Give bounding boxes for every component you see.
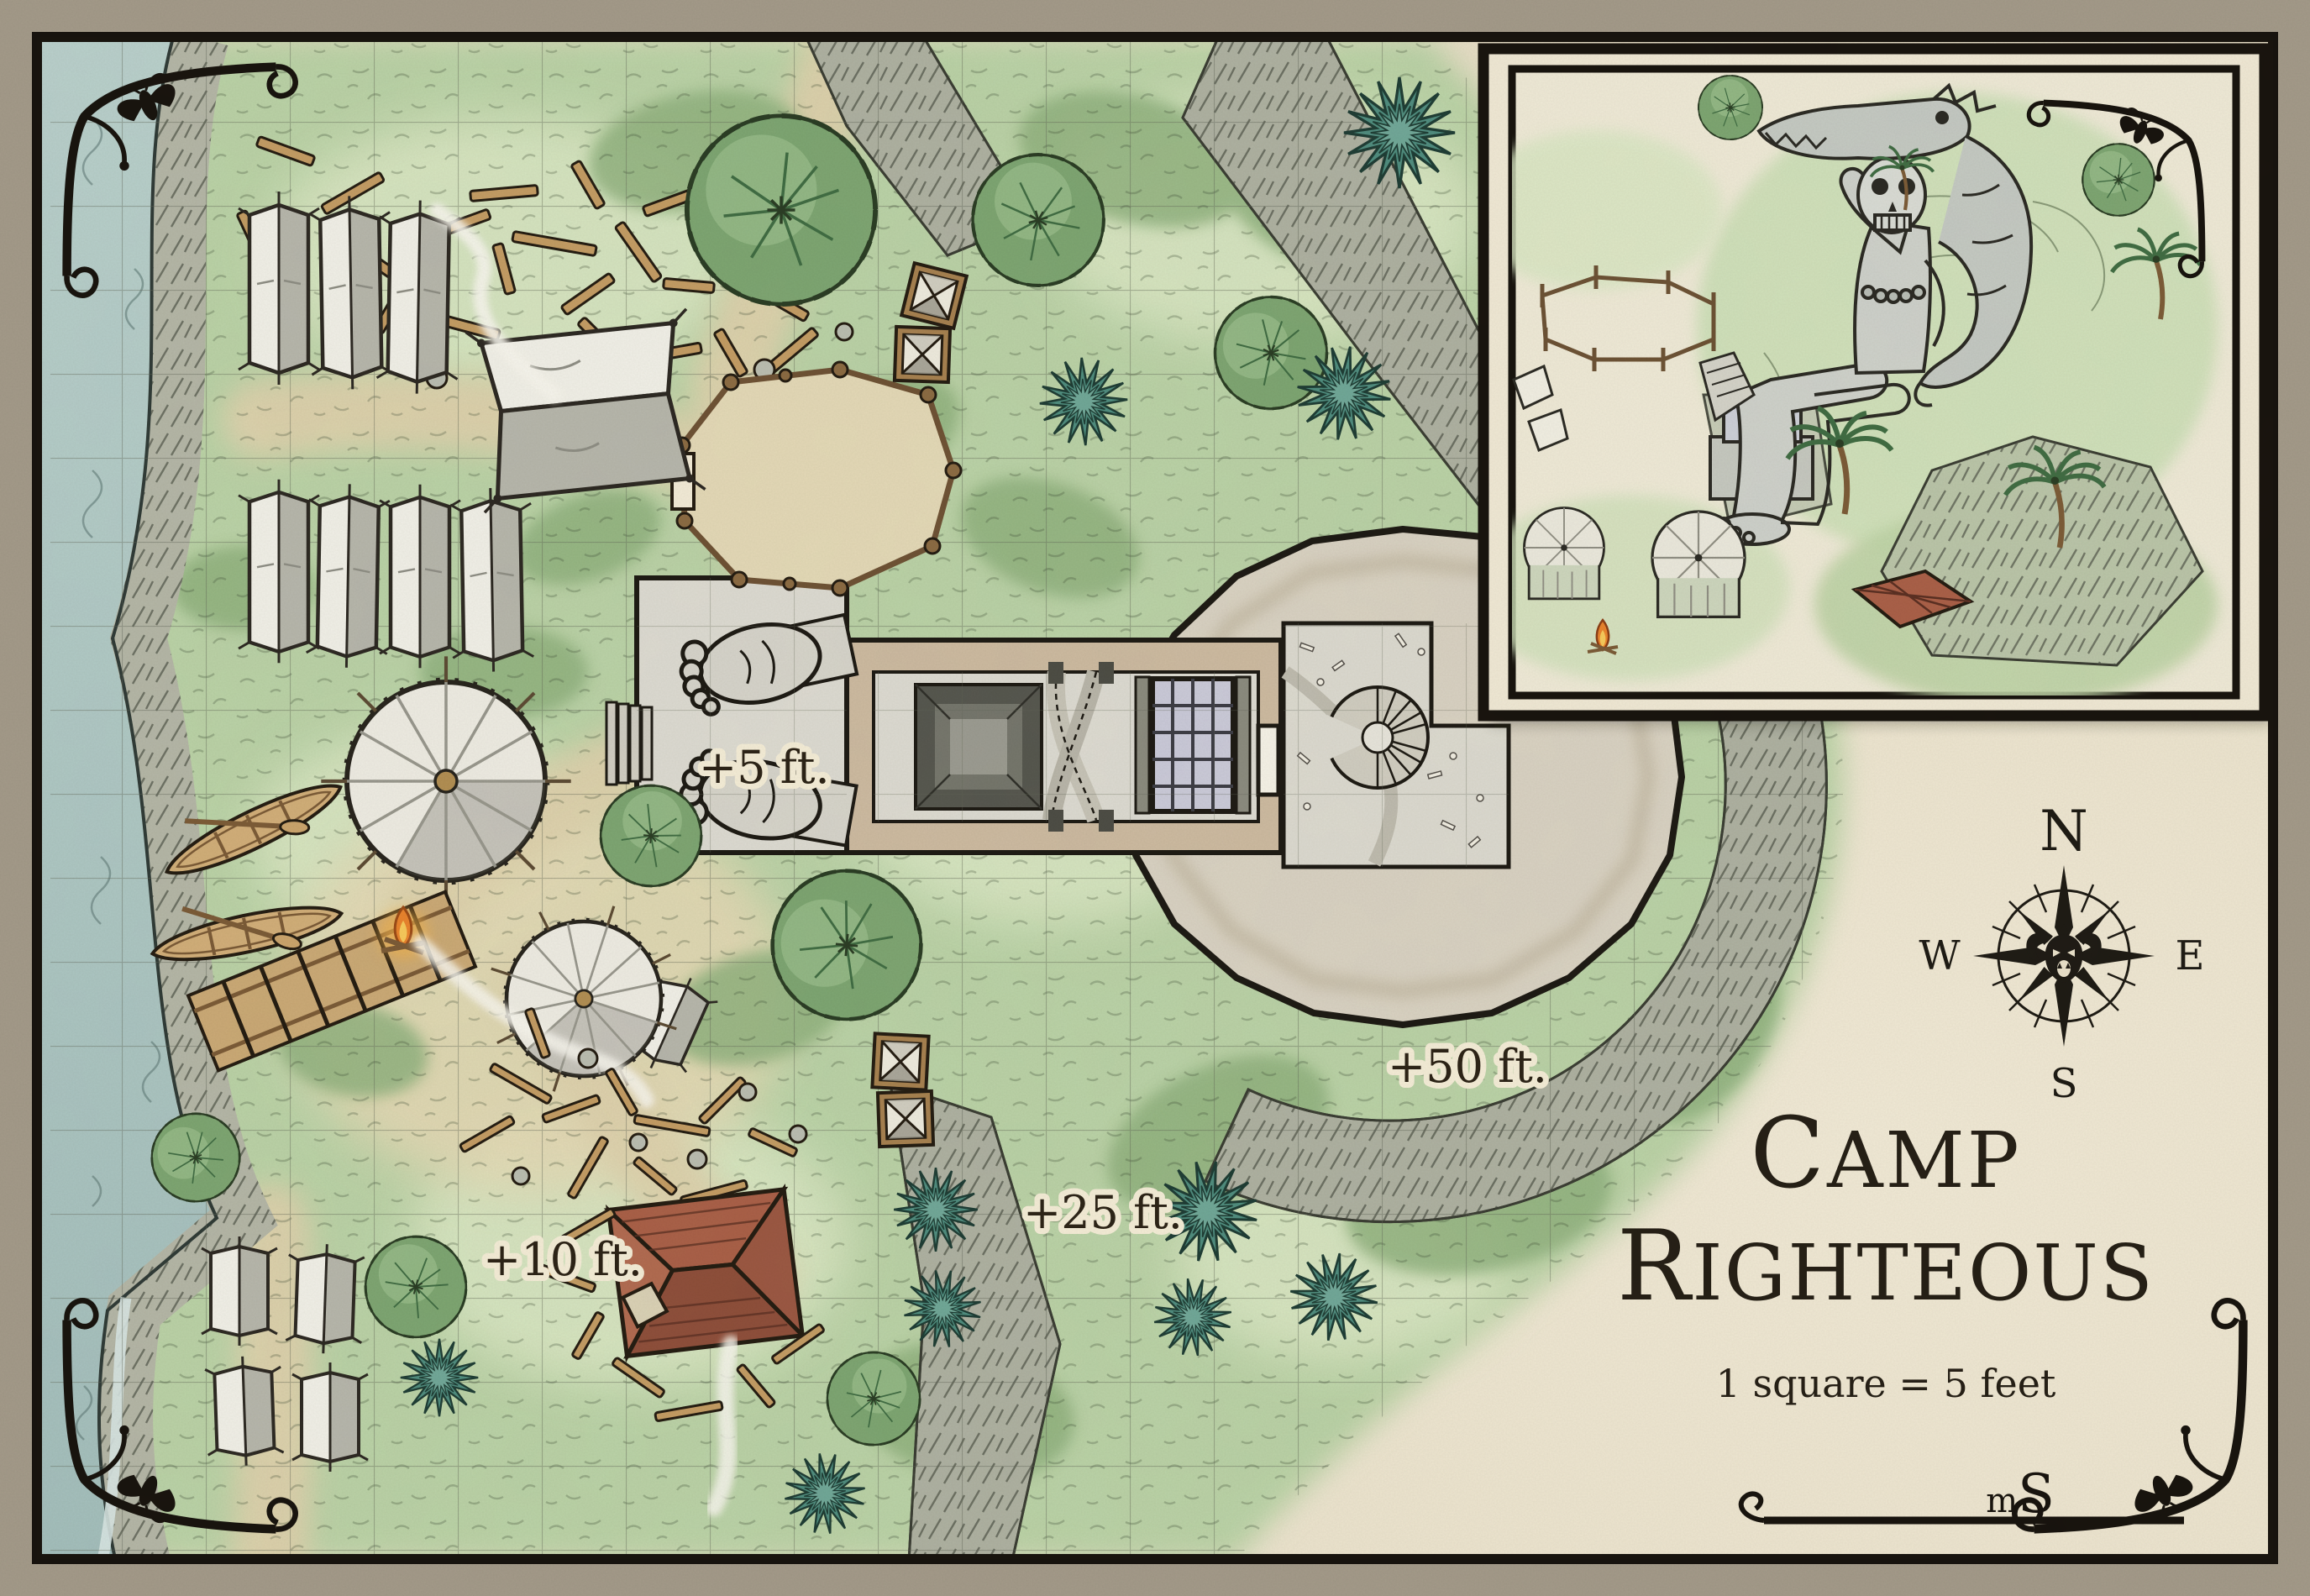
map-page: +5 ft. +10 ft. +25 ft. +50 ft. — [0, 0, 2310, 1596]
paper-grain — [0, 0, 2310, 1596]
camp-righteous-map: +5 ft. +10 ft. +25 ft. +50 ft. — [0, 0, 2310, 1596]
